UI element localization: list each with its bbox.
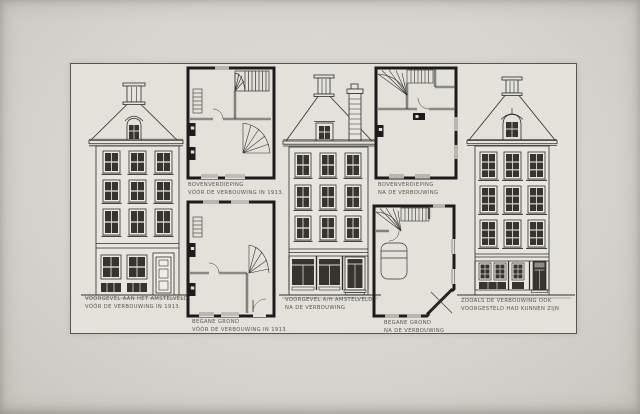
chimney-flues [378,113,426,137]
stair-winder [378,70,433,95]
caption-line: VÓÓR DE VERBOUWING IN 1913. [188,190,284,198]
caption-line: NA DE VERBOUWING [285,305,373,313]
caption-line: NA DE VERBOUWING [378,190,438,198]
shop-door [532,261,548,293]
stair-winder [249,245,269,273]
plan-upper-after-caption: BOVENVERDIEPING NA DE VERBOUWING [378,182,438,197]
stair-winder [376,208,429,231]
plan-upper-before-caption: BOVENVERDIEPING VÓÓR DE VERBOUWING IN 19… [188,182,284,197]
plan-upper-after-drawing [373,65,459,181]
facade-proposal-panel [457,73,575,299]
plan-upper-after-panel [373,65,459,181]
shopfront [475,261,549,293]
facade-before-caption: VOORGEVEL AAN HET AMSTELVELD. VÓÓR DE VE… [85,296,190,311]
plan-ground-before-panel [185,199,277,319]
caption-line: NA DE VERBOUWING [384,328,444,336]
chimney [347,84,363,141]
chimney-flues [190,123,196,160]
facade-proposal-drawing [457,73,575,299]
caption-line: VOORGESTELD HAD KUNNEN ZIJN [461,306,559,314]
plan-upper-before-panel [185,65,277,181]
entry-door [153,253,174,295]
caption-line: VÓÓR DE VERBOUWING IN 1913. [192,327,288,335]
plan-ground-before-drawing [185,199,277,319]
plan-ground-after-panel [371,203,457,321]
caption-line: VOORGEVEL AAN HET AMSTELVELD. [85,296,190,304]
fitting-outline [381,243,407,279]
caption-line: VÓÓR DE VERBOUWING IN 1913. [85,304,190,312]
chimney-flues [190,243,196,296]
caption-line: BOVENVERDIEPING [378,182,438,190]
facade-after-panel [279,73,381,299]
plan-ground-after-caption: BEGANE GROND NA DE VERBOUWING [384,320,444,335]
plan-ground-before-caption: BEGANE GROND VÓÓR DE VERBOUWING IN 1913. [192,319,288,334]
scanned-architectural-sheet: VOORGEVEL AAN HET AMSTELVELD. VÓÓR DE VE… [0,0,640,414]
plan-upper-before-drawing [185,65,277,181]
sheet-frame: VOORGEVEL AAN HET AMSTELVELD. VÓÓR DE VE… [70,63,577,334]
stair-upper [235,71,269,91]
stair-winder [243,123,270,153]
caption-line: BEGANE GROND [384,320,444,328]
caption-line: VOORGEVEL A/H AMSTELVELD [285,297,373,305]
facade-after-caption: VOORGEVEL A/H AMSTELVELD NA DE VERBOUWIN… [285,297,373,312]
shop-door [344,257,366,295]
facade-before-drawing [81,73,189,299]
caption-line: BOVENVERDIEPING [188,182,284,190]
facade-after-drawing [279,73,381,299]
plan-ground-after-drawing [371,203,457,321]
facade-proposal-caption: ZOOALS DE VERBOUWING OOK VOORGESTELD HAD… [461,298,559,313]
caption-line: ZOOALS DE VERBOUWING OOK [461,298,559,306]
caption-line: BEGANE GROND [192,319,288,327]
facade-before-panel [81,73,189,299]
